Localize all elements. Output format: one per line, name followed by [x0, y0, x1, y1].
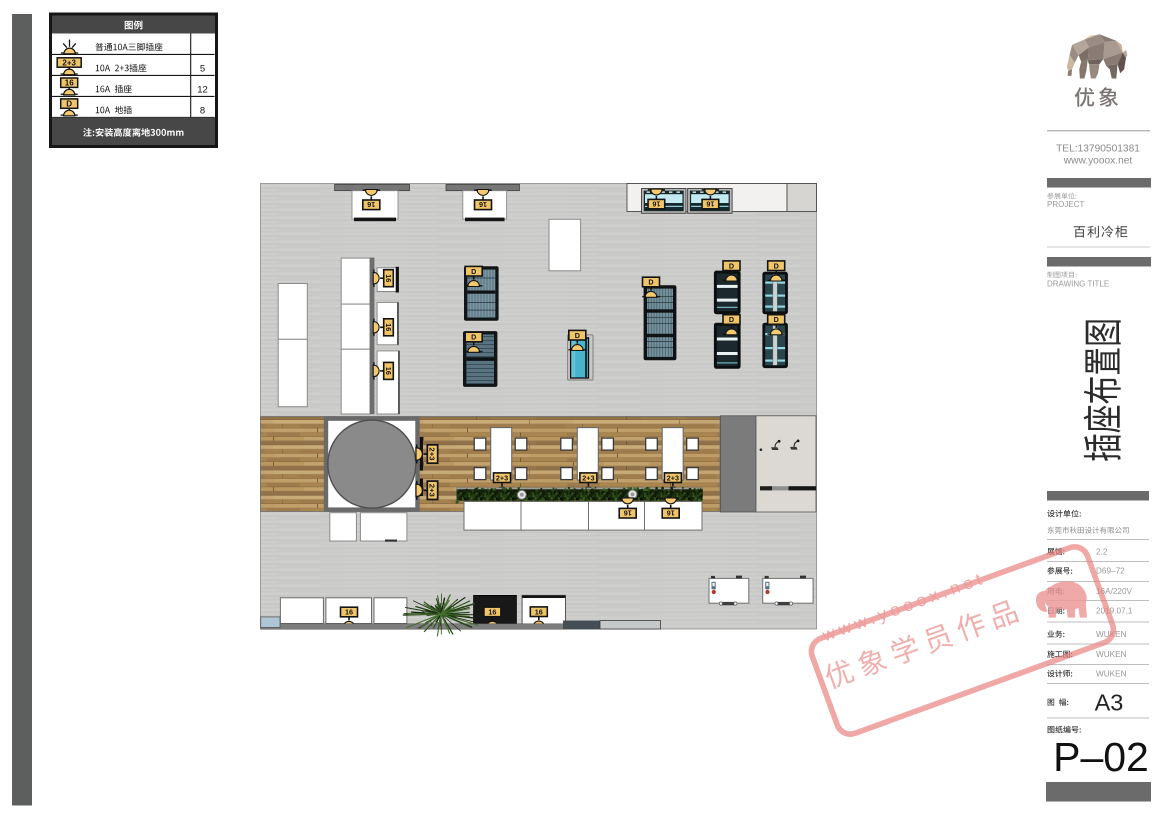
svg-text:A3: A3: [1095, 690, 1124, 716]
svg-text:WUKEN: WUKEN: [1096, 670, 1127, 679]
svg-text:5: 5: [200, 64, 205, 75]
svg-text:2.2: 2.2: [1096, 547, 1108, 556]
svg-text:D: D: [648, 278, 653, 287]
svg-text:2+3: 2+3: [496, 473, 508, 482]
svg-text:16: 16: [367, 200, 375, 209]
svg-text:12: 12: [197, 85, 208, 96]
svg-text:D: D: [729, 315, 734, 324]
svg-text:16: 16: [384, 367, 393, 375]
svg-text:www.yooox.net: www.yooox.net: [1063, 156, 1133, 167]
svg-text:WUKEN: WUKEN: [1096, 650, 1127, 659]
svg-text:P–02: P–02: [1053, 734, 1149, 780]
svg-text:16: 16: [652, 200, 660, 207]
svg-text:PROJECT: PROJECT: [1047, 200, 1084, 209]
svg-text:2+3: 2+3: [428, 447, 437, 461]
svg-text:16: 16: [488, 608, 496, 617]
svg-text:D: D: [471, 333, 476, 342]
svg-text:16: 16: [384, 323, 393, 331]
svg-text:D: D: [66, 100, 72, 109]
svg-text:TEL:13790501381: TEL:13790501381: [1056, 144, 1140, 155]
svg-text:16: 16: [667, 509, 675, 518]
svg-text:D: D: [729, 261, 734, 270]
svg-text:2+3: 2+3: [428, 484, 437, 498]
svg-text:16: 16: [384, 274, 393, 282]
svg-text:2019.07,1: 2019.07,1: [1096, 607, 1133, 616]
svg-text:8: 8: [200, 106, 205, 117]
svg-text:2+3: 2+3: [62, 58, 76, 67]
svg-text:D: D: [774, 261, 779, 270]
svg-text:D: D: [575, 331, 580, 340]
svg-text:2+3: 2+3: [582, 473, 594, 482]
svg-text:16: 16: [479, 200, 487, 209]
svg-text:16: 16: [65, 79, 74, 88]
svg-text:D: D: [471, 267, 476, 276]
svg-text:D: D: [774, 315, 779, 324]
svg-text:16: 16: [624, 509, 632, 518]
svg-text:16: 16: [706, 200, 714, 207]
svg-text:16: 16: [535, 607, 543, 616]
svg-text:D69–72: D69–72: [1096, 567, 1125, 576]
svg-text:DRAWING TITLE: DRAWING TITLE: [1047, 279, 1109, 288]
svg-text:16: 16: [345, 608, 353, 617]
svg-text:2+3: 2+3: [667, 473, 679, 482]
